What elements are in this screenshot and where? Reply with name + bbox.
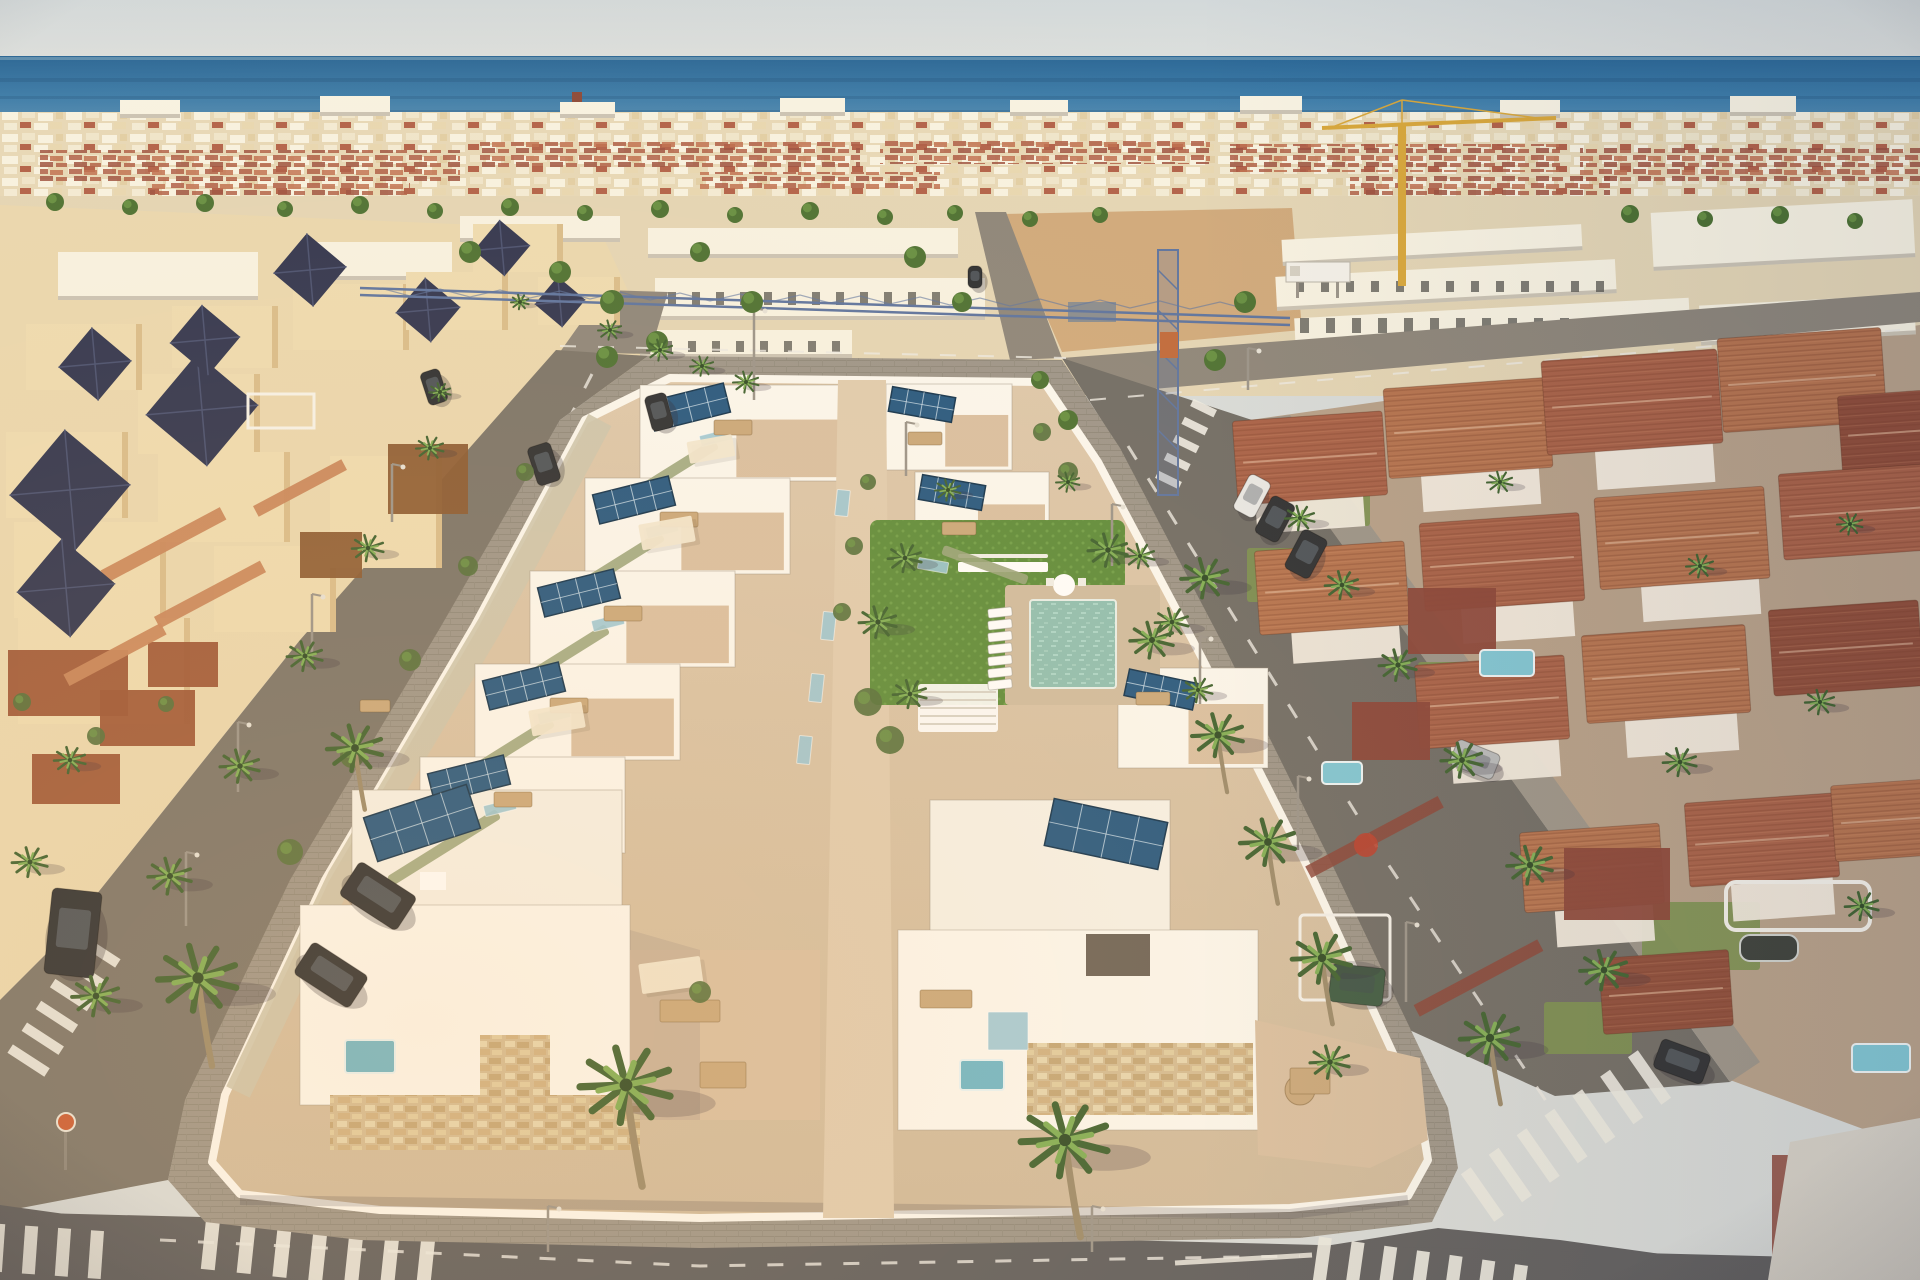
aerial-photo: Aerial drone view of a new-build white v…	[0, 0, 1920, 1280]
vignette	[0, 0, 1920, 1280]
